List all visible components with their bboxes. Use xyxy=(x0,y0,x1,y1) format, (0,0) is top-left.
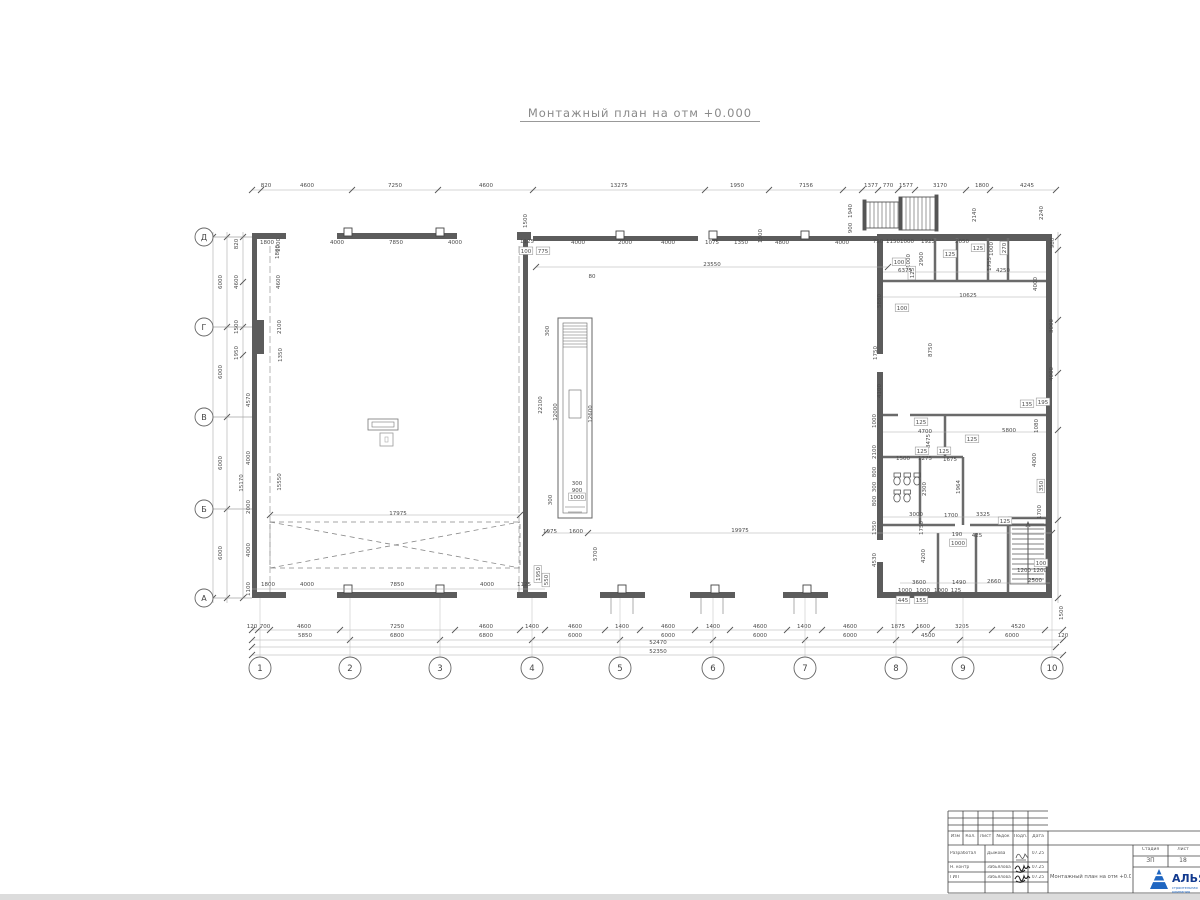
dimension-text: 4000 xyxy=(1049,367,1055,381)
svg-text:2660: 2660 xyxy=(987,579,1001,585)
dimension-text: 1490 xyxy=(952,580,966,586)
dimension-text: 15550 xyxy=(277,473,283,491)
svg-text:6000: 6000 xyxy=(218,546,224,560)
svg-text:5850: 5850 xyxy=(298,633,312,639)
svg-text:7156: 7156 xyxy=(799,183,813,189)
svg-text:6000: 6000 xyxy=(568,633,582,639)
dimension-text: 1000 xyxy=(989,242,995,256)
svg-text:4600: 4600 xyxy=(234,275,240,289)
dimension-text: 4000 xyxy=(835,240,849,246)
dimension-text: 1400 xyxy=(615,624,629,630)
dimension-text: 4600 xyxy=(234,275,240,289)
svg-text:1350: 1350 xyxy=(278,348,284,362)
dimension-text: 125 xyxy=(914,418,928,426)
dimension-text: 6000 xyxy=(218,365,224,379)
svg-text:2900: 2900 xyxy=(919,252,925,266)
svg-text:750: 750 xyxy=(873,239,884,245)
dimension-text: 6000 xyxy=(1005,633,1019,639)
svg-text:7850: 7850 xyxy=(390,582,404,588)
svg-text:1000: 1000 xyxy=(276,238,282,252)
dimension-text: 1125 xyxy=(517,582,531,588)
svg-text:3000: 3000 xyxy=(909,512,923,518)
dimension-text: 1950 xyxy=(234,346,240,360)
axis-bubble: А xyxy=(195,589,252,607)
svg-text:17975: 17975 xyxy=(389,511,407,517)
svg-text:270: 270 xyxy=(1002,242,1008,253)
dimension-text: 750 xyxy=(873,239,884,245)
svg-text:445: 445 xyxy=(898,598,909,604)
svg-text:80: 80 xyxy=(589,274,596,280)
stair-top-right xyxy=(863,195,938,231)
svg-text:800: 800 xyxy=(872,466,878,477)
dimension-text: 4000 xyxy=(1033,277,1039,291)
tb-header-ndok: №док xyxy=(993,834,1013,839)
dimension-text: 425 xyxy=(972,533,983,539)
dimension-text: 125 xyxy=(965,435,979,443)
svg-text:8: 8 xyxy=(893,664,898,674)
svg-text:1400: 1400 xyxy=(797,624,811,630)
svg-text:100: 100 xyxy=(1036,561,1047,567)
dimension-text: 300 xyxy=(872,481,878,492)
svg-text:23550: 23550 xyxy=(703,262,721,268)
svg-text:1875: 1875 xyxy=(891,624,905,630)
svg-text:1950: 1950 xyxy=(234,346,240,360)
svg-text:12000: 12000 xyxy=(553,403,559,421)
dimension-text: 3170 xyxy=(933,183,947,189)
dimension-text: 270 xyxy=(1000,241,1008,255)
svg-text:1950: 1950 xyxy=(730,183,744,189)
svg-text:1950: 1950 xyxy=(536,567,542,581)
dimension-text: 1000 xyxy=(950,539,967,547)
pit-outline xyxy=(270,522,520,568)
dimension-text: 550 xyxy=(542,573,550,587)
dimension-text: 5850 xyxy=(298,633,312,639)
dimension-text: 12000 xyxy=(553,403,559,421)
tb-header-izm: Изм xyxy=(948,834,963,839)
dimension-text: 100 xyxy=(895,304,909,312)
svg-text:1940: 1940 xyxy=(848,204,854,218)
svg-text:1700: 1700 xyxy=(944,513,958,519)
axis-bubble: 2 xyxy=(339,598,361,679)
svg-text:300: 300 xyxy=(872,481,878,492)
axis-bubble: 1 xyxy=(249,598,271,679)
dimension-text: 4600 xyxy=(297,624,311,630)
dimension-text: 770 xyxy=(883,183,894,189)
dimension-text: 1500 xyxy=(896,456,910,462)
dimension-text: 1200 xyxy=(1017,568,1031,574)
dimension-text: 4000 xyxy=(330,240,344,246)
axis-bubble: 5 xyxy=(609,598,631,679)
svg-text:2300: 2300 xyxy=(922,482,928,496)
svg-text:4600: 4600 xyxy=(297,624,311,630)
svg-text:1490: 1490 xyxy=(952,580,966,586)
dimension-text: 12600 xyxy=(588,405,594,423)
svg-text:4570: 4570 xyxy=(246,393,252,407)
svg-text:1200: 1200 xyxy=(1017,568,1031,574)
svg-text:120: 120 xyxy=(247,624,258,630)
tb-name: Дыжова xyxy=(987,851,1013,856)
axis-bubble: 7 xyxy=(794,598,816,679)
svg-text:19975: 19975 xyxy=(731,528,749,534)
dimension-text: 2140 xyxy=(972,208,978,222)
dimension-text: 1755 xyxy=(987,257,993,271)
dimension-text: 22100 xyxy=(538,396,544,414)
dimension-text: 125 xyxy=(951,588,962,594)
dimension-text: 1750 xyxy=(873,346,879,360)
dimension-text: 1350 xyxy=(872,521,878,535)
dimension-text: 120 xyxy=(247,624,258,630)
svg-text:1200: 1200 xyxy=(1033,568,1047,574)
stair-bottom-right xyxy=(1010,518,1046,584)
dimension-text: 2240 xyxy=(1039,206,1045,220)
svg-text:5700: 5700 xyxy=(593,547,599,561)
svg-text:12600: 12600 xyxy=(588,405,594,423)
dimension-text: 4250 xyxy=(996,268,1010,274)
svg-text:300: 300 xyxy=(548,494,554,505)
dimension-text: 445 xyxy=(896,596,910,604)
dimension-text: 17975 xyxy=(389,511,407,517)
svg-text:820: 820 xyxy=(261,183,272,189)
svg-text:125: 125 xyxy=(951,588,962,594)
dimension-text: 1377 xyxy=(864,183,878,189)
svg-text:135: 135 xyxy=(1022,402,1033,408)
dimension-text: 3205 xyxy=(955,624,969,630)
svg-text:8750: 8750 xyxy=(928,343,934,357)
dimension-text: 190 xyxy=(952,532,963,538)
svg-text:4000: 4000 xyxy=(1032,453,1038,467)
svg-text:5880: 5880 xyxy=(877,294,883,308)
dimension-text: 6000 xyxy=(843,633,857,639)
svg-text:3205: 3205 xyxy=(955,624,969,630)
dimension-text: 4100 xyxy=(877,384,883,398)
svg-text:300: 300 xyxy=(545,325,551,336)
dimension-text: 4600 xyxy=(300,183,314,189)
axis-bubble: Б xyxy=(195,500,252,518)
dimension-text: 125 xyxy=(971,244,985,252)
svg-text:В: В xyxy=(201,413,207,422)
dimension-text: 1800 xyxy=(975,183,989,189)
svg-text:6000: 6000 xyxy=(1005,633,1019,639)
svg-text:10: 10 xyxy=(1047,664,1058,674)
svg-text:13275: 13275 xyxy=(610,183,628,189)
axis-bubble: 6 xyxy=(702,598,724,679)
svg-text:4000: 4000 xyxy=(1033,277,1039,291)
dimension-text: 1100 xyxy=(246,582,252,596)
svg-text:4200: 4200 xyxy=(921,549,927,563)
column-legs xyxy=(611,598,816,614)
svg-text:10625: 10625 xyxy=(959,293,977,299)
svg-text:1000: 1000 xyxy=(951,541,965,547)
dimension-text: 2900 xyxy=(919,252,925,266)
svg-text:9: 9 xyxy=(960,664,965,674)
dimension-text: 1000 xyxy=(906,254,912,268)
svg-text:4600: 4600 xyxy=(479,183,493,189)
svg-text:820: 820 xyxy=(234,238,240,249)
dimension-text: 125 xyxy=(937,447,951,455)
dimension-text: 7156 xyxy=(799,183,813,189)
dimension-text: 3475 xyxy=(926,434,932,448)
dimension-text: 2000 xyxy=(246,500,252,514)
svg-text:3475: 3475 xyxy=(926,434,932,448)
dimension-text: 4000 xyxy=(300,582,314,588)
svg-text:2100: 2100 xyxy=(277,320,283,334)
svg-text:4000: 4000 xyxy=(448,240,462,246)
svg-text:155: 155 xyxy=(916,598,927,604)
dimension-text: 7250 xyxy=(388,183,402,189)
dimension-text: 1080 xyxy=(1034,419,1040,433)
dimension-text: 1940 xyxy=(848,204,854,218)
dimension-text: 1950 xyxy=(730,183,744,189)
logo-text: АЛЬЯ xyxy=(1172,872,1200,885)
dimension-text: 19975 xyxy=(731,528,749,534)
wc-fixtures xyxy=(894,473,921,502)
dimension-text: 1750 xyxy=(919,521,925,535)
dimension-text: 6375 xyxy=(898,268,912,274)
axis-bubble: 9 xyxy=(952,598,974,679)
dimension-text: 1200 xyxy=(1033,568,1047,574)
dimension-text: 1350 xyxy=(278,348,284,362)
dimension-text: 800 xyxy=(872,466,878,477)
svg-text:6000: 6000 xyxy=(218,365,224,379)
dimension-text: 4520 xyxy=(1011,624,1025,630)
svg-text:125: 125 xyxy=(939,449,950,455)
svg-text:1500: 1500 xyxy=(523,214,529,228)
svg-text:7250: 7250 xyxy=(388,183,402,189)
svg-text:195: 195 xyxy=(1038,400,1049,406)
logo-triangle-icon xyxy=(1149,869,1169,889)
dimension-text: 4600 xyxy=(479,624,493,630)
dimension-text: 4000 xyxy=(571,240,585,246)
dimension-text: 1000 xyxy=(898,588,912,594)
svg-text:3600: 3600 xyxy=(912,580,926,586)
svg-text:1275: 1275 xyxy=(918,456,932,462)
svg-text:120: 120 xyxy=(1058,633,1069,639)
svg-text:1577: 1577 xyxy=(899,183,913,189)
dimension-text: 2660 xyxy=(987,579,1001,585)
dimension-text: 4000 xyxy=(246,451,252,465)
dimension-text: 1875 xyxy=(891,624,905,630)
svg-text:1000: 1000 xyxy=(570,495,584,501)
svg-text:Д: Д xyxy=(201,233,207,242)
tb-role: Разработал xyxy=(950,851,985,856)
tb-role: Н. контр xyxy=(950,865,985,870)
svg-text:5: 5 xyxy=(617,664,622,674)
svg-text:770: 770 xyxy=(883,183,894,189)
dimension-text: 1350 xyxy=(734,240,748,246)
dimension-text: 1700 xyxy=(1037,505,1043,519)
svg-text:425: 425 xyxy=(972,533,983,539)
dimension-text: 6000 xyxy=(568,633,582,639)
svg-text:1755: 1755 xyxy=(987,257,993,271)
svg-text:4000: 4000 xyxy=(246,451,252,465)
dimension-text: 1500 xyxy=(523,214,529,228)
dimension-text: 4000 xyxy=(1032,453,1038,467)
dimension-text: 4600 xyxy=(568,624,582,630)
svg-text:900: 900 xyxy=(848,222,854,233)
svg-text:2050: 2050 xyxy=(955,239,969,245)
dimension-text: 195 xyxy=(1036,398,1050,406)
dimension-text: 1000 xyxy=(569,493,586,501)
svg-text:4600: 4600 xyxy=(300,183,314,189)
axis-bubble: 3 xyxy=(429,598,451,679)
dimension-text: 300 xyxy=(548,494,554,505)
svg-text:3170: 3170 xyxy=(933,183,947,189)
svg-text:1000: 1000 xyxy=(872,414,878,428)
svg-text:15550: 15550 xyxy=(277,473,283,491)
axis-bubble: В xyxy=(195,408,252,426)
dimension-text: 120 xyxy=(1058,633,1069,639)
svg-text:7: 7 xyxy=(802,664,807,674)
tb-doc-title: Монтажный план на отм +0.000 xyxy=(1050,874,1131,880)
dimension-text: 6800 xyxy=(479,633,493,639)
dimension-text: 10625 xyxy=(959,293,977,299)
svg-text:100: 100 xyxy=(897,306,908,312)
svg-text:4600: 4600 xyxy=(753,624,767,630)
dimension-text: 6000 xyxy=(218,456,224,470)
dimension-text: 100 xyxy=(1034,559,1048,567)
dimension-text: 4500 xyxy=(921,633,935,639)
dimension-text: 1925 xyxy=(921,239,935,245)
svg-text:1000: 1000 xyxy=(934,588,948,594)
axis-bubble: 4 xyxy=(521,598,543,679)
dimension-text: 2100 xyxy=(872,445,878,459)
dimension-text: 1700 xyxy=(944,513,958,519)
svg-text:4600: 4600 xyxy=(276,275,282,289)
svg-text:2000: 2000 xyxy=(246,500,252,514)
svg-text:1800: 1800 xyxy=(260,240,274,246)
dimension-text: 980 xyxy=(1050,237,1056,248)
svg-text:1800: 1800 xyxy=(975,183,989,189)
column-markers xyxy=(344,228,811,593)
dimension-text: 1500 xyxy=(758,229,764,243)
dimension-text: 820 xyxy=(234,238,240,249)
dimension-text: 900 xyxy=(848,222,854,233)
svg-text:4000: 4000 xyxy=(1049,367,1055,381)
dimension-text: 2100 xyxy=(277,320,283,334)
dimension-text: 23550 xyxy=(703,262,721,268)
svg-text:100: 100 xyxy=(521,249,532,255)
dimension-text: 125 xyxy=(943,250,957,258)
svg-text:6: 6 xyxy=(710,664,715,674)
dimension-text: 775 xyxy=(536,247,550,255)
axis-bubble: Д xyxy=(195,228,252,246)
dimension-text: 1000 xyxy=(900,239,914,245)
tb-sheet-label: Лист xyxy=(1170,847,1196,852)
dimension-text: 700 xyxy=(260,624,271,630)
svg-text:1000: 1000 xyxy=(898,588,912,594)
svg-text:2100: 2100 xyxy=(872,445,878,459)
svg-text:1125: 1125 xyxy=(517,582,531,588)
svg-text:1: 1 xyxy=(257,664,262,674)
svg-text:6000: 6000 xyxy=(753,633,767,639)
svg-text:6000: 6000 xyxy=(218,456,224,470)
svg-text:1964: 1964 xyxy=(956,480,962,494)
dimension-text: 1125 xyxy=(520,239,534,245)
dimension-text: 7250 xyxy=(390,624,404,630)
dimension-text: 1075 xyxy=(705,240,719,246)
svg-text:125: 125 xyxy=(917,449,928,455)
svg-text:6000: 6000 xyxy=(843,633,857,639)
dimension-text: 5880 xyxy=(877,294,883,308)
svg-text:2000: 2000 xyxy=(618,240,632,246)
tb-role: ГИП xyxy=(950,875,985,880)
svg-text:4600: 4600 xyxy=(661,624,675,630)
dimension-text: 15170 xyxy=(239,474,245,492)
dimension-text: 4600 xyxy=(843,624,857,630)
tb-stage-label: Стадия xyxy=(1135,847,1166,852)
signature xyxy=(1016,854,1028,860)
dimension-text: 155 xyxy=(914,596,928,604)
svg-text:22100: 22100 xyxy=(538,396,544,414)
svg-text:4000: 4000 xyxy=(480,582,494,588)
svg-text:1500: 1500 xyxy=(896,456,910,462)
dimension-text: 4600 xyxy=(753,624,767,630)
tb-name: Забьялова xyxy=(987,865,1013,870)
tb-header-podp: Подп. xyxy=(1013,834,1028,839)
logo-subtext: строительная компания xyxy=(1172,886,1200,894)
dimension-text: 1675 xyxy=(943,457,957,463)
tb-header-list: Лист xyxy=(978,834,993,839)
svg-text:6375: 6375 xyxy=(898,268,912,274)
dimension-text: 6000 xyxy=(753,633,767,639)
svg-text:52350: 52350 xyxy=(649,649,667,655)
svg-text:4000: 4000 xyxy=(330,240,344,246)
dimension-text: 7850 xyxy=(390,582,404,588)
dimension-text: 4245 xyxy=(1020,183,1034,189)
svg-text:2500: 2500 xyxy=(1028,578,1042,584)
svg-text:4000: 4000 xyxy=(571,240,585,246)
dimension-text: 2050 xyxy=(955,239,969,245)
tb-date: 07.25 xyxy=(1028,851,1048,856)
dimension-text: 3325 xyxy=(976,512,990,518)
svg-text:4245: 4245 xyxy=(1020,183,1034,189)
svg-text:1075: 1075 xyxy=(705,240,719,246)
svg-text:1975: 1975 xyxy=(543,529,557,535)
dimension-text: 3600 xyxy=(912,580,926,586)
dimension-text: 300 xyxy=(572,481,583,487)
svg-text:100: 100 xyxy=(894,260,905,266)
svg-text:700: 700 xyxy=(260,624,271,630)
dimension-text: 1000 xyxy=(276,238,282,252)
dimension-text: 820 xyxy=(261,183,272,189)
dimension-text: 1000 xyxy=(916,588,930,594)
dimension-text: 3000 xyxy=(1049,319,1055,333)
svg-text:Б: Б xyxy=(201,505,207,514)
axis-bubble: 8 xyxy=(885,598,907,679)
dimension-text: 4000 xyxy=(246,543,252,557)
dimension-text: 52350 xyxy=(649,649,667,655)
svg-text:190: 190 xyxy=(952,532,963,538)
svg-text:4800: 4800 xyxy=(775,240,789,246)
svg-text:7850: 7850 xyxy=(389,240,403,246)
svg-text:6000: 6000 xyxy=(218,275,224,289)
tb-date: 07.25 xyxy=(1028,875,1048,880)
plan-drawing: 8204600725046001327519507156137777015773… xyxy=(0,0,1200,900)
drawing-sheet: Монтажный план на отм +0.000 xyxy=(0,0,1200,900)
dimension-text: 100 xyxy=(892,258,906,266)
svg-text:4600: 4600 xyxy=(479,624,493,630)
dimension-text: 1950 xyxy=(534,566,542,583)
dimension-text: 4600 xyxy=(661,624,675,630)
svg-text:125: 125 xyxy=(945,252,956,258)
svg-text:1675: 1675 xyxy=(943,457,957,463)
dimension-text: 1150 xyxy=(886,239,900,245)
svg-text:6800: 6800 xyxy=(390,633,404,639)
dimension-text: 135 xyxy=(1020,400,1034,408)
dimension-text: 1600 xyxy=(916,624,930,630)
dimension-text: 2000 xyxy=(618,240,632,246)
svg-text:1600: 1600 xyxy=(916,624,930,630)
